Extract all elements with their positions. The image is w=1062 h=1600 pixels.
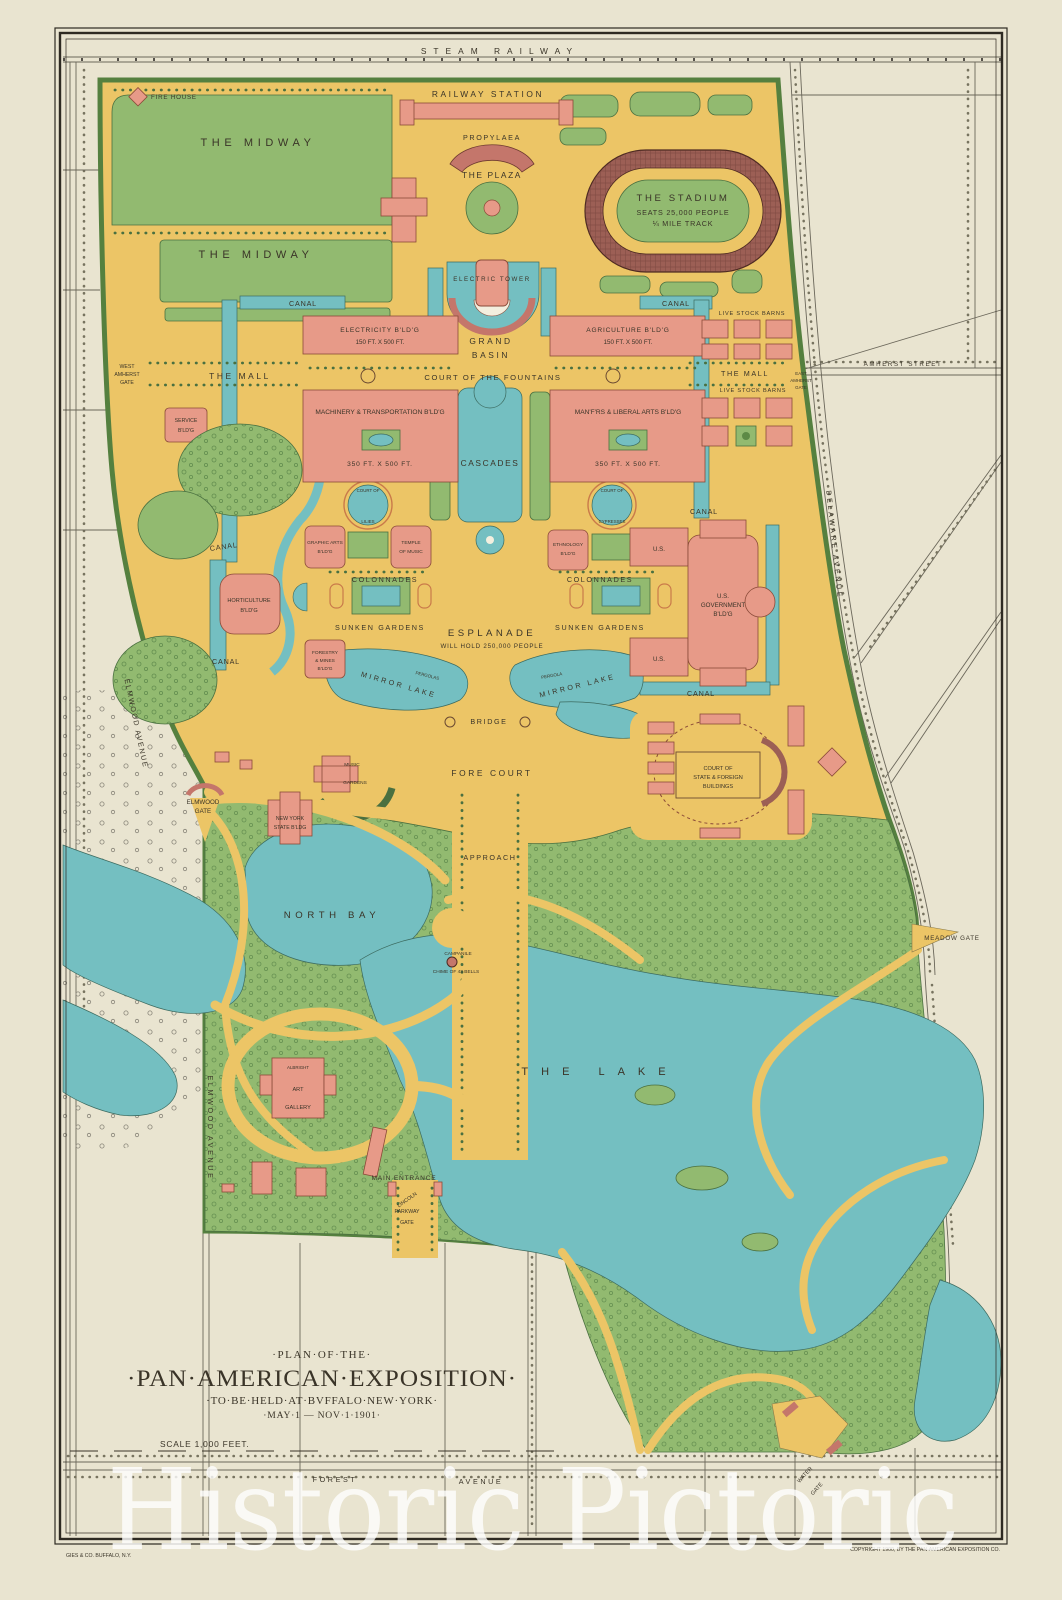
label-main-entrance: MAIN ENTRANCE bbox=[372, 1175, 437, 1182]
label-machinery-2: 350 FT. X 500 FT. bbox=[347, 461, 413, 468]
label-forestry-1: FORESTRY bbox=[312, 650, 339, 656]
lake-island bbox=[742, 1233, 778, 1251]
horticulture-bldg bbox=[220, 574, 280, 634]
label-graphic-arts-1: GRAPHIC ARTS bbox=[307, 540, 343, 546]
label-grand: GRAND bbox=[469, 336, 512, 346]
label-campanile-2: CHIME OF 43 BELLS bbox=[433, 969, 479, 975]
lake-island bbox=[635, 1085, 675, 1105]
label-east-amherst-1: EAST bbox=[795, 371, 807, 376]
label-manfrs-2: 350 FT. X 500 FT. bbox=[595, 461, 661, 468]
label-forestry-2: & MINES bbox=[315, 658, 335, 664]
label-ethnology-2: B'LD'G bbox=[561, 551, 576, 557]
label-ny-state-2: STATE B'LDG bbox=[274, 825, 307, 831]
map-page: STEAM RAILWAY FIRE HOUSE THE MIDWAY THE … bbox=[0, 0, 1062, 1600]
label-steam-railway: STEAM RAILWAY bbox=[421, 46, 579, 56]
label-barns-2: LIVE STOCK BARNS bbox=[720, 388, 786, 394]
label-usgov-1: U.S. bbox=[717, 593, 729, 600]
label-the-mall-west: THE MALL bbox=[209, 371, 271, 381]
label-railway-station: RAILWAY STATION bbox=[432, 89, 544, 99]
label-west-amherst-2: AMHERST bbox=[114, 372, 140, 378]
label-canal-4: CANAL bbox=[212, 657, 240, 666]
label-ethnology-1: ETHNOLOGY bbox=[553, 542, 584, 548]
label-stadium-2: SEATS 25,000 PEOPLE bbox=[637, 208, 730, 217]
label-stadium-1: THE STADIUM bbox=[637, 193, 730, 204]
label-propylaea: PROPYLAEA bbox=[463, 133, 521, 142]
label-electricity-2: 150 FT. X 500 FT. bbox=[356, 339, 405, 346]
label-barns-1: LIVE STOCK BARNS bbox=[719, 311, 785, 317]
label-agriculture-1: AGRICULTURE B'LD'G bbox=[586, 327, 669, 334]
label-electric-tower: ELECTRIC TOWER bbox=[453, 276, 531, 283]
label-agriculture-2: 150 FT. X 500 FT. bbox=[604, 339, 653, 346]
label-gate: GATE bbox=[400, 1220, 414, 1226]
label-usgov-2: GOVERNMENT bbox=[701, 602, 746, 609]
label-horticulture-1: HORTICULTURE bbox=[227, 598, 271, 604]
label-colonnades-west: COLONNADES bbox=[352, 575, 418, 584]
electricity-bldg bbox=[303, 316, 458, 354]
lake-island bbox=[676, 1166, 728, 1190]
label-parkway: PARKWAY bbox=[395, 1209, 421, 1215]
label-court-state-3: BUILDINGS bbox=[703, 784, 733, 790]
label-stadium-3: ¼ MILE TRACK bbox=[653, 219, 714, 228]
label-fore-court: FORE COURT bbox=[451, 768, 532, 778]
label-gallery: GALLERY bbox=[285, 1105, 311, 1111]
label-canal-5: CANAL bbox=[690, 507, 718, 516]
label-machinery-1: MACHINERY & TRANSPORTATION B'LD'G bbox=[315, 409, 444, 416]
electric-tower-shape bbox=[476, 260, 508, 306]
pan-american-exposition-map: STEAM RAILWAY FIRE HOUSE THE MIDWAY THE … bbox=[0, 0, 1062, 1600]
label-ny-state-1: NEW YORK bbox=[276, 816, 305, 822]
label-service-2: B'LD'G bbox=[178, 428, 194, 434]
label-electricity-1: ELECTRICITY B'LD'G bbox=[340, 327, 419, 334]
label-elmwood-gate-1: ELMWOOD bbox=[187, 799, 220, 806]
label-basin: BASIN bbox=[472, 350, 510, 360]
label-meadow-gate: MEADOW GATE bbox=[924, 935, 979, 942]
agriculture-bldg bbox=[550, 316, 705, 356]
label-north-bay: NORTH BAY bbox=[284, 910, 380, 921]
grand-basin bbox=[447, 260, 539, 334]
label-bridge: BRIDGE bbox=[470, 717, 507, 726]
label-horticulture-2: B'LD'G bbox=[240, 608, 257, 614]
label-colonnades-east: COLONNADES bbox=[567, 575, 633, 584]
watermark-text: Historic Pictoric bbox=[107, 1446, 959, 1576]
label-sunken-east: SUNKEN GARDENS bbox=[555, 623, 645, 632]
railway-station-bldg bbox=[410, 103, 563, 119]
ethnology-bldg bbox=[548, 530, 588, 570]
label-the-plaza: THE PLAZA bbox=[462, 170, 522, 180]
label-elmwood-avenue-south: ELMWOOD AVENUE bbox=[206, 1076, 215, 1181]
title-line-2: ·PAN·AMERICAN·EXPOSITION· bbox=[127, 1366, 517, 1391]
label-canal-6: CANAL bbox=[687, 689, 715, 698]
label-cypresses-2: CYPRESSES bbox=[599, 519, 626, 524]
label-music-2: GARDENS bbox=[343, 780, 367, 786]
label-temple-1: TEMPLE bbox=[401, 540, 420, 546]
label-campanile-1: CAMPANILE bbox=[444, 951, 471, 957]
label-approach: APPROACH bbox=[463, 853, 516, 862]
label-west-amherst-1: WEST bbox=[120, 364, 136, 370]
label-the-mall-east: THE MALL bbox=[721, 369, 769, 378]
label-esplanade-1: ESPLANADE bbox=[448, 628, 536, 639]
label-the-lake: THE LAKE bbox=[521, 1066, 678, 1078]
label-sunken-west: SUNKEN GARDENS bbox=[335, 623, 425, 632]
label-art: ART bbox=[292, 1087, 304, 1093]
label-cascades: CASCADES bbox=[461, 458, 520, 468]
label-service-1: SERVICE bbox=[175, 418, 198, 424]
label-the-midway-1: THE MIDWAY bbox=[200, 137, 315, 149]
label-elmwood-gate-2: GATE bbox=[195, 808, 211, 815]
label-us-north: U.S. bbox=[653, 546, 665, 553]
label-canal-2: CANAL bbox=[662, 299, 690, 308]
label-the-midway-2: THE MIDWAY bbox=[198, 249, 313, 261]
label-temple-2: OF MUSIC bbox=[399, 549, 423, 555]
label-west-amherst-3: GATE bbox=[120, 380, 134, 386]
label-forestry-3: B'LD'G bbox=[318, 666, 333, 672]
label-albright: ALBRIGHT bbox=[287, 1065, 309, 1070]
label-us-south: U.S. bbox=[653, 656, 665, 663]
title-line-3: ·TO·BE·HELD·AT·BVFFALO·NEW·YORK· bbox=[206, 1395, 438, 1407]
label-court-state-2: STATE & FOREIGN bbox=[693, 775, 743, 781]
label-canal-1: CANAL bbox=[289, 299, 317, 308]
label-music-1: MUSIC bbox=[344, 762, 360, 768]
label-esplanade-2: WILL HOLD 250,000 PEOPLE bbox=[441, 643, 544, 650]
label-cypresses-1: COURT OF bbox=[601, 488, 624, 493]
title-line-4: ·MAY·1 — NOV·1·1901· bbox=[263, 1410, 380, 1421]
label-manfrs-1: MAN'F'RS & LIBERAL ARTS B'LD'G bbox=[575, 409, 682, 416]
label-east-amherst-3: GATE bbox=[795, 385, 807, 390]
label-court-state-1: COURT OF bbox=[703, 766, 733, 772]
graphic-arts-bldg bbox=[305, 526, 345, 568]
label-court-fountains: COURT OF THE FOUNTAINS bbox=[424, 373, 561, 382]
label-usgov-3: B'LD'G bbox=[713, 611, 732, 618]
label-lilies-2: LILIES bbox=[361, 519, 374, 524]
temple-of-music-bldg bbox=[391, 526, 431, 568]
title-line-1: ·PLAN·OF·THE· bbox=[272, 1349, 372, 1361]
label-graphic-arts-2: B'LD'G bbox=[318, 549, 333, 555]
label-lilies-1: COURT OF bbox=[357, 488, 380, 493]
label-fire-house: FIRE HOUSE bbox=[151, 94, 197, 101]
label-east-amherst-2: AMHERST bbox=[790, 378, 812, 383]
label-amherst-street: AMHERST STREET bbox=[864, 361, 943, 368]
